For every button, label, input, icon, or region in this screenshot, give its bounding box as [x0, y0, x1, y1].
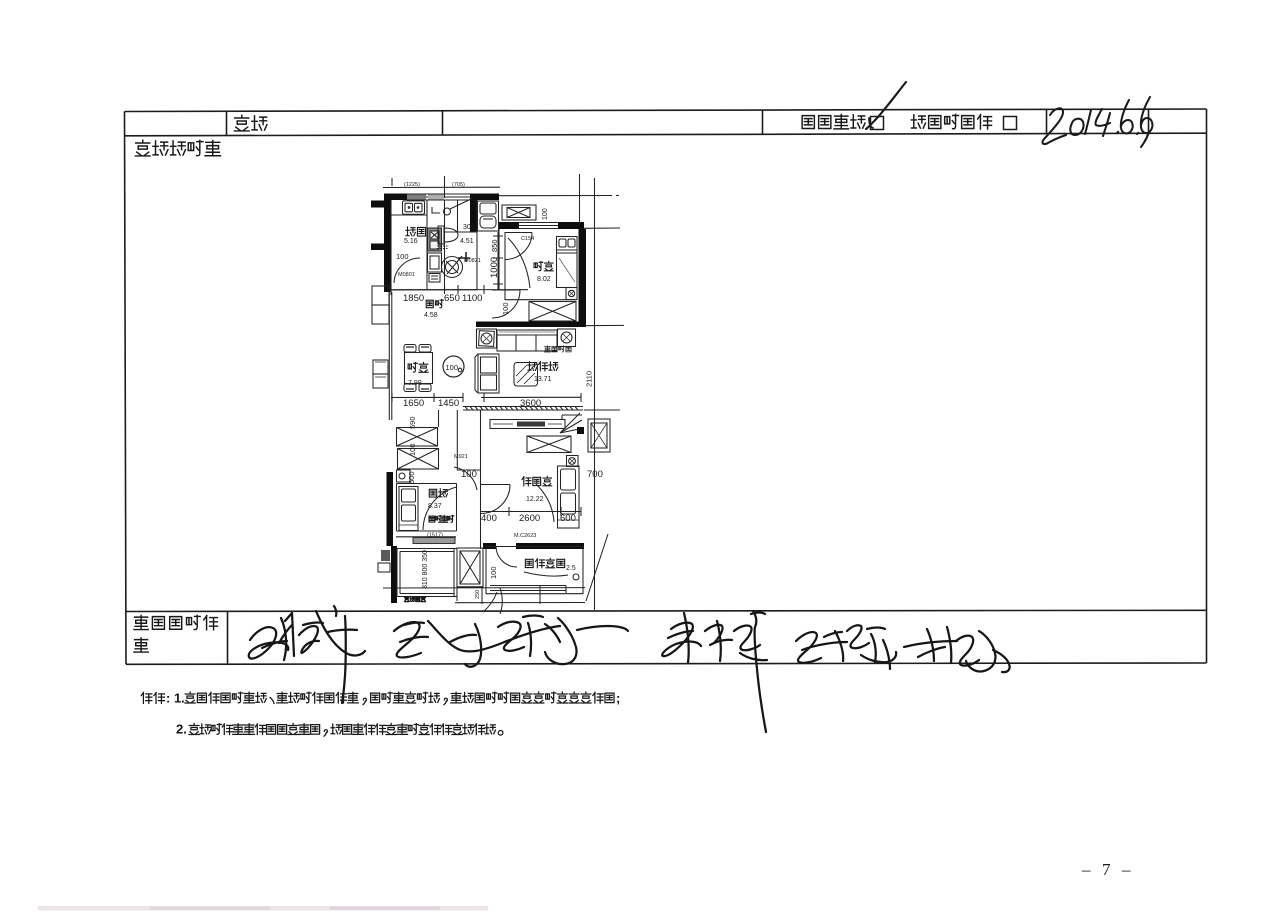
svg-text:2.: 2.	[176, 722, 187, 737]
svg-text:100: 100	[501, 302, 510, 315]
svg-text:4.58: 4.58	[424, 312, 438, 319]
svg-text:600: 600	[560, 513, 576, 524]
svg-text:5.16: 5.16	[404, 238, 418, 245]
svg-text:M.C2623: M.C2623	[514, 533, 536, 539]
svg-text:400: 400	[481, 513, 497, 524]
svg-text:300: 300	[463, 224, 475, 231]
svg-text:310 800 350: 310 800 350	[422, 550, 429, 589]
svg-text:2.5: 2.5	[566, 565, 576, 572]
svg-text:1850: 1850	[403, 293, 424, 304]
svg-text:M921: M921	[454, 454, 468, 460]
svg-text:M0821: M0821	[464, 258, 481, 264]
svg-text:700: 700	[587, 469, 603, 480]
svg-text:100: 100	[396, 252, 409, 261]
svg-text:600: 600	[407, 471, 416, 484]
svg-text:100: 100	[461, 469, 477, 480]
svg-text:12.22: 12.22	[526, 496, 544, 503]
svg-text:(1225): (1225)	[404, 182, 420, 188]
svg-text:;: ;	[616, 691, 620, 706]
svg-text:100: 100	[542, 208, 549, 220]
svg-text:100: 100	[489, 566, 498, 579]
svg-text:2110: 2110	[585, 371, 594, 387]
svg-text:M0801: M0801	[398, 272, 415, 278]
svg-text:4.51: 4.51	[460, 238, 474, 245]
svg-text:650: 650	[444, 293, 460, 304]
svg-text:250: 250	[475, 590, 481, 599]
svg-text:8.02: 8.02	[537, 276, 551, 283]
svg-text:: 1.: : 1.	[166, 691, 185, 706]
svg-text:1450: 1450	[438, 398, 459, 409]
svg-text:2600: 2600	[519, 513, 540, 524]
svg-text:C154: C154	[521, 236, 534, 242]
svg-text:1650: 1650	[403, 398, 424, 409]
svg-text:– 7 –: – 7 –	[1081, 860, 1132, 879]
svg-text:(705): (705)	[452, 182, 465, 188]
svg-text:1100: 1100	[462, 293, 482, 304]
svg-text:100: 100	[446, 363, 459, 372]
svg-text:13.71: 13.71	[534, 376, 552, 383]
